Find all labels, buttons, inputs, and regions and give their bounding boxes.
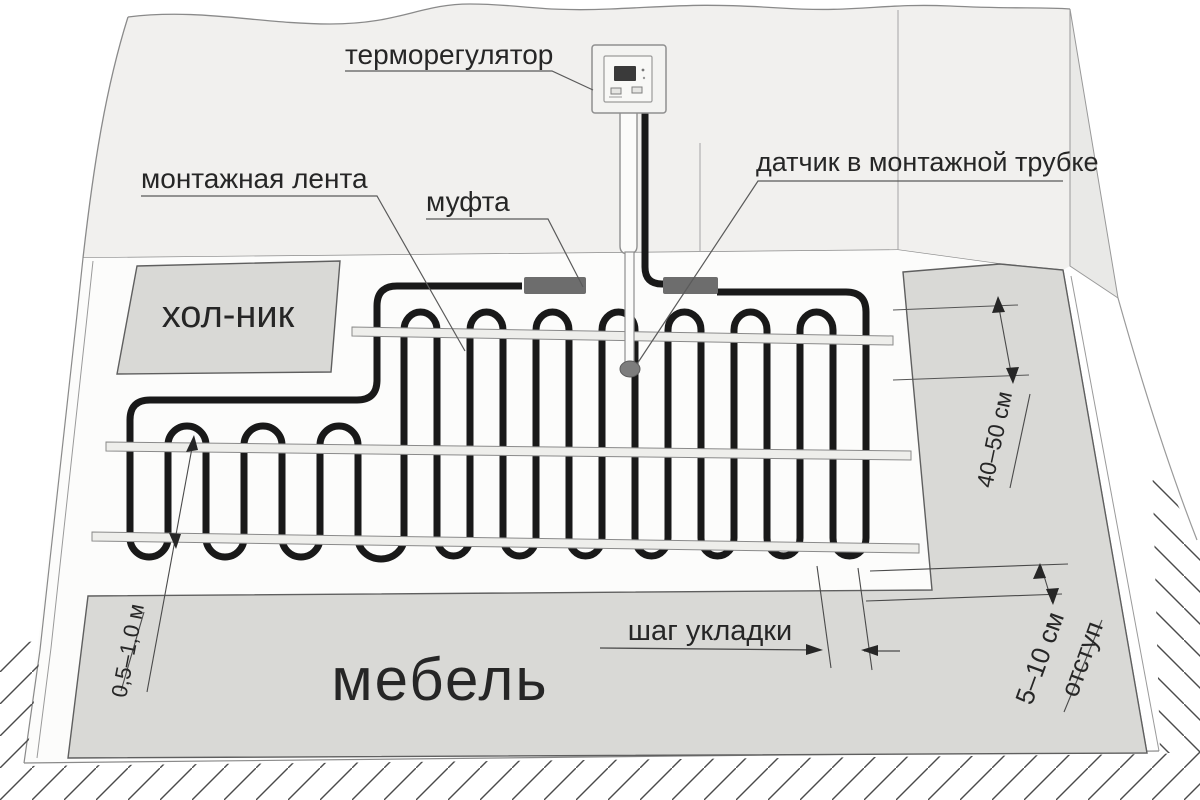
label-coupling: муфта xyxy=(426,186,510,217)
coupling-power xyxy=(663,277,718,294)
floor-heating-diagram: терморегулятор монтажная лента муфта дат… xyxy=(0,0,1200,800)
thermostat-button-left xyxy=(611,88,621,94)
label-sensor: датчик в монтажной трубке xyxy=(756,147,1098,177)
thermostat xyxy=(592,45,666,113)
sensor-tube-floor xyxy=(625,252,634,364)
label-mounting-tape: монтажная лента xyxy=(141,163,368,194)
label-furniture-zone: мебель xyxy=(331,646,548,713)
coupling-end xyxy=(524,277,586,294)
label-fridge-zone: хол-ник xyxy=(162,294,295,336)
thermostat-display xyxy=(614,66,636,81)
sensor-tube-wall xyxy=(620,104,637,254)
label-thermostat: терморегулятор xyxy=(345,39,553,70)
thermostat-button-right xyxy=(632,87,642,93)
wall xyxy=(83,4,1070,270)
label-laying-pitch: шаг укладки xyxy=(628,615,792,647)
